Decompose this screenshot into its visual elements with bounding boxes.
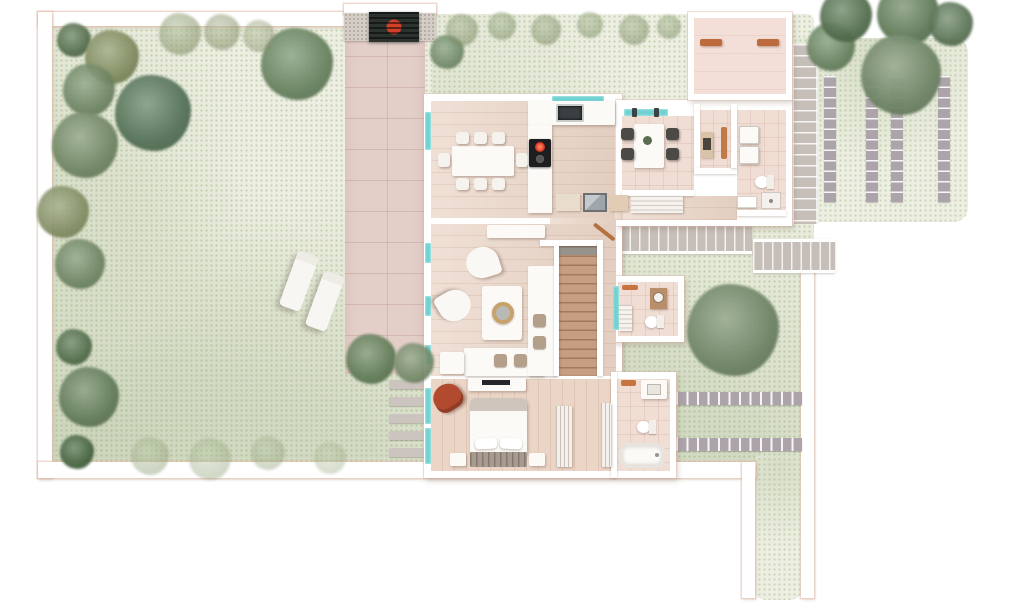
- window-bedroom-west-1: [425, 388, 431, 424]
- window-frame-clamp: [632, 108, 637, 117]
- parking-paver-strip: [824, 76, 836, 202]
- tree: [115, 75, 191, 151]
- boundary-wall-strip-left: [742, 462, 755, 598]
- breakfast-table: [634, 124, 664, 168]
- tree: [251, 436, 285, 470]
- tree: [619, 15, 649, 45]
- outdoor-steps-upper: [620, 222, 752, 254]
- bed-pillow: [475, 437, 498, 449]
- boundary-wall-left: [38, 12, 52, 478]
- radiator: [619, 305, 632, 331]
- tree: [189, 438, 231, 480]
- bed-headboard: [470, 452, 527, 467]
- utility-console-item: [703, 138, 711, 150]
- wc-shower-drain: [769, 199, 773, 203]
- wc-sink: [737, 196, 757, 208]
- entry-courtyard-floor: [694, 18, 786, 94]
- wall-wc-south: [737, 210, 786, 216]
- wall-utility-wc: [731, 104, 737, 168]
- floor-plan-canvas: [0, 0, 1024, 605]
- staircase: [559, 246, 597, 376]
- courtyard-bench: [757, 39, 779, 46]
- tree: [531, 15, 561, 45]
- dining-table: [452, 146, 514, 176]
- hall-console: [556, 194, 580, 211]
- window-bedroom-west-2: [425, 428, 431, 464]
- bed-folded-blanket: [470, 398, 527, 411]
- wall-bedroom-bath: [611, 372, 617, 478]
- vanity-basin: [647, 384, 661, 395]
- dining-chair: [456, 132, 469, 144]
- bed-pillow: [500, 437, 523, 449]
- window-frame-clamp: [654, 108, 659, 117]
- hall-mirror: [583, 193, 607, 212]
- stair-wall: [597, 240, 603, 376]
- tree: [59, 367, 119, 427]
- breakfast-chair: [621, 128, 634, 140]
- hall-cabinet: [610, 195, 628, 211]
- dining-chair: [492, 178, 505, 190]
- wall-utility-south: [694, 168, 737, 174]
- tree: [52, 112, 118, 178]
- laundry-appliance: [739, 126, 759, 144]
- courtyard-bench: [700, 39, 722, 46]
- tree: [159, 13, 201, 55]
- breakfast-chair: [666, 148, 679, 160]
- decor-bowl: [492, 302, 514, 324]
- nightstand: [450, 453, 466, 466]
- tree: [687, 284, 779, 376]
- driveway: [345, 26, 425, 374]
- gate-pier-left: [344, 13, 370, 41]
- sofa-end-table: [440, 352, 464, 374]
- wardrobe: [601, 403, 611, 467]
- garden-side-strip: [752, 452, 804, 600]
- tree: [577, 12, 603, 38]
- tree: [56, 329, 92, 365]
- tree: [243, 20, 275, 52]
- toilet-tank: [649, 420, 656, 434]
- sofa-cushion: [533, 336, 546, 349]
- door-leaf-wood: [721, 127, 727, 159]
- towel-rail: [621, 380, 636, 386]
- tree: [394, 343, 434, 383]
- sofa-cushion: [494, 354, 507, 367]
- dining-chair: [474, 178, 487, 190]
- garden-paver-row: [676, 392, 802, 405]
- wc-toilet-tank: [767, 175, 774, 189]
- toilet-tank: [657, 315, 664, 328]
- dining-chair: [516, 153, 528, 167]
- garden-paver-row: [676, 438, 802, 451]
- guest-vanity-basin: [653, 292, 664, 303]
- tree: [60, 435, 94, 469]
- wardrobe: [556, 406, 572, 467]
- sofa-cushion: [514, 354, 527, 367]
- paver-path-vertical: [792, 44, 818, 224]
- tree: [37, 186, 89, 238]
- dining-chair: [438, 153, 450, 167]
- dining-chair: [492, 132, 505, 144]
- window-living-west-1: [425, 243, 431, 263]
- tree: [657, 15, 681, 39]
- laundry-appliance: [739, 146, 759, 164]
- tree: [204, 14, 240, 50]
- tree: [314, 442, 346, 474]
- sideboard: [487, 225, 545, 238]
- breakfast-chair: [621, 148, 634, 160]
- kitchen-sink: [556, 104, 584, 122]
- passage-floor: [550, 218, 616, 224]
- breakfast-chair: [666, 128, 679, 140]
- nightstand: [529, 453, 545, 466]
- table-plant: [643, 136, 652, 145]
- cooktop-burner: [536, 155, 544, 163]
- window-living-west-2: [425, 296, 431, 316]
- window-breakfast-north: [624, 109, 668, 116]
- boundary-wall-strip-right: [801, 248, 814, 598]
- tree: [131, 437, 169, 475]
- tree: [346, 334, 396, 384]
- outdoor-steps-lower: [753, 239, 835, 273]
- parking-paver-strip: [938, 76, 950, 202]
- tree: [861, 35, 941, 115]
- bathtub-drain: [655, 453, 659, 457]
- wall-breakfast-utility: [694, 104, 700, 170]
- hall-bench: [631, 196, 683, 213]
- window-dining-west: [425, 112, 431, 150]
- tree: [446, 14, 478, 46]
- tv-screen: [482, 380, 510, 385]
- tree: [488, 12, 516, 40]
- dining-chair: [456, 178, 469, 190]
- tree: [55, 239, 105, 289]
- gate-pier-right: [419, 13, 436, 41]
- sofa-cushion: [533, 314, 546, 327]
- tree: [63, 64, 115, 116]
- gate-panel: [369, 12, 419, 42]
- tree: [929, 2, 973, 46]
- cooktop-burner-hot: [535, 142, 545, 152]
- towel-rail: [622, 285, 638, 290]
- dining-chair: [474, 132, 487, 144]
